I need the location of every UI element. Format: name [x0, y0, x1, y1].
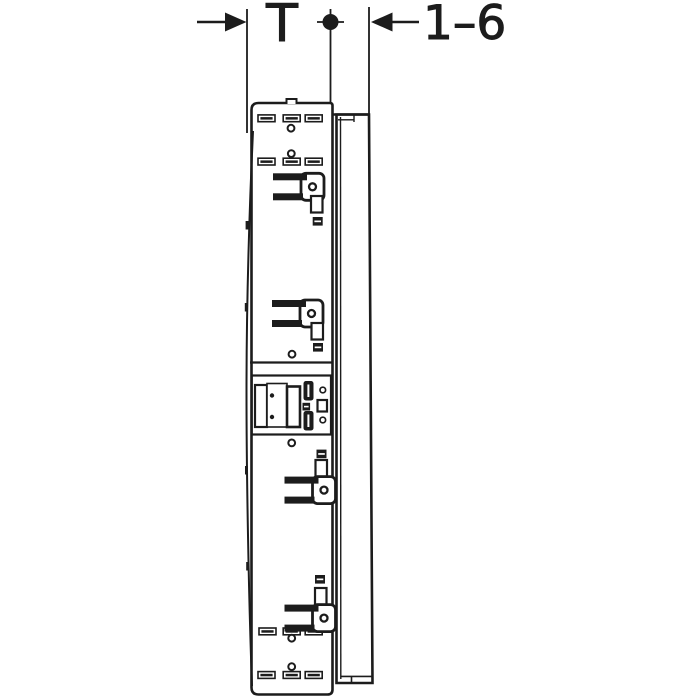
- center-mark-dot: [317, 9, 344, 111]
- mounting-slot: [283, 158, 300, 165]
- fixing-window: [312, 323, 324, 340]
- mounting-slot: [258, 672, 275, 679]
- dimension-range-label: 1–6: [423, 0, 506, 51]
- clip-mark: [246, 562, 249, 571]
- screw-dot: [270, 393, 274, 397]
- dimension-depth-label: T: [265, 0, 298, 54]
- screw-hole: [288, 635, 295, 642]
- fixing-window: [311, 196, 323, 213]
- cabinet-assembly: [245, 99, 373, 695]
- fixing-window: [315, 588, 327, 605]
- screw-hole: [289, 351, 296, 358]
- screw-hole: [288, 125, 295, 132]
- dimension-arrow-right: [371, 13, 419, 32]
- clip-mark: [245, 303, 248, 312]
- screw-dot: [270, 415, 274, 419]
- mechanism-socket: [318, 400, 328, 412]
- mechanism-hole: [320, 387, 326, 393]
- fixing-clip: [313, 343, 323, 352]
- mechanism-bar: [287, 387, 300, 428]
- mounting-slot: [283, 672, 300, 679]
- screw-hole: [288, 440, 295, 447]
- mounting-slot: [305, 158, 322, 165]
- mounting-slot: [259, 628, 276, 635]
- mechanism-plate: [267, 384, 287, 428]
- mounting-slot: [258, 115, 275, 122]
- mounting-slot: [258, 158, 275, 165]
- technical-drawing-page: T 1–6: [0, 0, 700, 700]
- mounting-slot: [305, 672, 322, 679]
- connector-terminal: [304, 411, 314, 431]
- screw-hole: [288, 663, 295, 670]
- fixing-window: [316, 460, 328, 477]
- clip-mark: [246, 221, 249, 230]
- clip-mark: [245, 466, 248, 475]
- top-tab: [287, 99, 297, 104]
- drawing-svg: T 1–6: [0, 0, 700, 700]
- connector-terminal: [304, 381, 314, 401]
- mini-terminal: [303, 403, 311, 411]
- hinge-mechanism: [252, 376, 331, 435]
- mechanism-hole: [320, 417, 326, 423]
- fixing-clip: [315, 575, 325, 584]
- dimension-annotations: T 1–6: [197, 0, 506, 133]
- dimension-arrow-left: [197, 13, 247, 32]
- mechanism-left-bracket: [255, 385, 267, 427]
- fixing-clip: [317, 450, 327, 459]
- screw-hole: [288, 150, 295, 157]
- mirror-door-panel: [333, 115, 373, 684]
- fixing-clip: [313, 217, 323, 226]
- mounting-slot: [305, 115, 322, 122]
- mounting-slot: [283, 115, 300, 122]
